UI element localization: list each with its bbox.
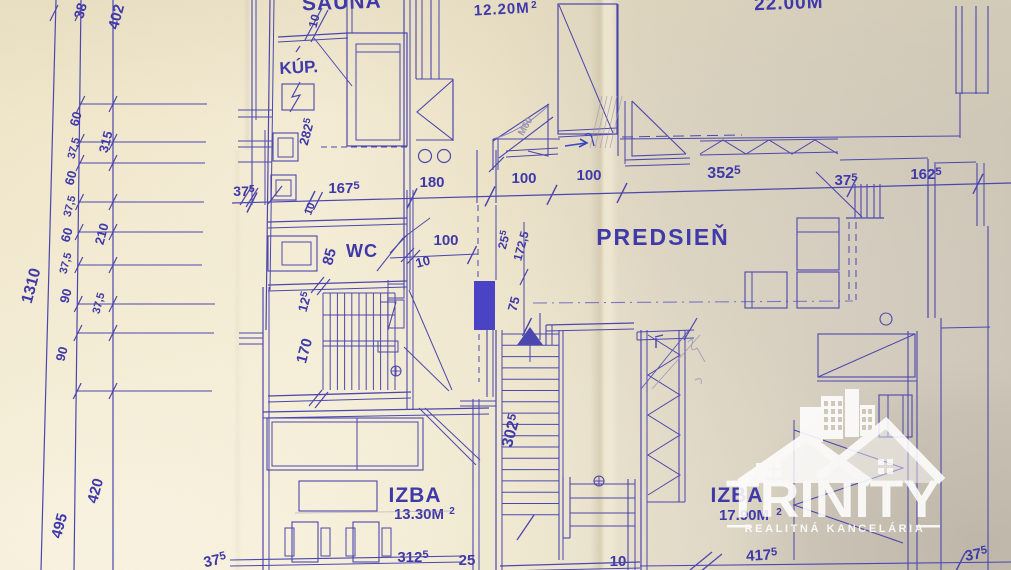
svg-text:10: 10 [610, 553, 627, 570]
svg-text:TRINITY: TRINITY [726, 470, 940, 529]
svg-text:WC: WC [346, 241, 378, 261]
svg-text:25: 25 [459, 552, 476, 569]
svg-text:100: 100 [576, 167, 601, 184]
svg-text:IZBA: IZBA [389, 484, 442, 507]
svg-text:22.00M: 22.00M [754, 0, 824, 15]
svg-text:12.20M: 12.20M [473, 0, 530, 19]
svg-text:REALITNÁ KANCELÁRIA: REALITNÁ KANCELÁRIA [745, 522, 926, 535]
svg-text:13.30M: 13.30M [394, 506, 444, 523]
svg-text:100: 100 [511, 170, 536, 187]
svg-text:PREDSIEŇ: PREDSIEŇ [596, 223, 730, 250]
svg-text:180: 180 [419, 174, 444, 191]
svg-text:100: 100 [433, 232, 458, 249]
svg-text:2: 2 [531, 0, 538, 11]
svg-text:2: 2 [449, 506, 455, 517]
svg-text:KÚP.: KÚP. [279, 57, 318, 78]
